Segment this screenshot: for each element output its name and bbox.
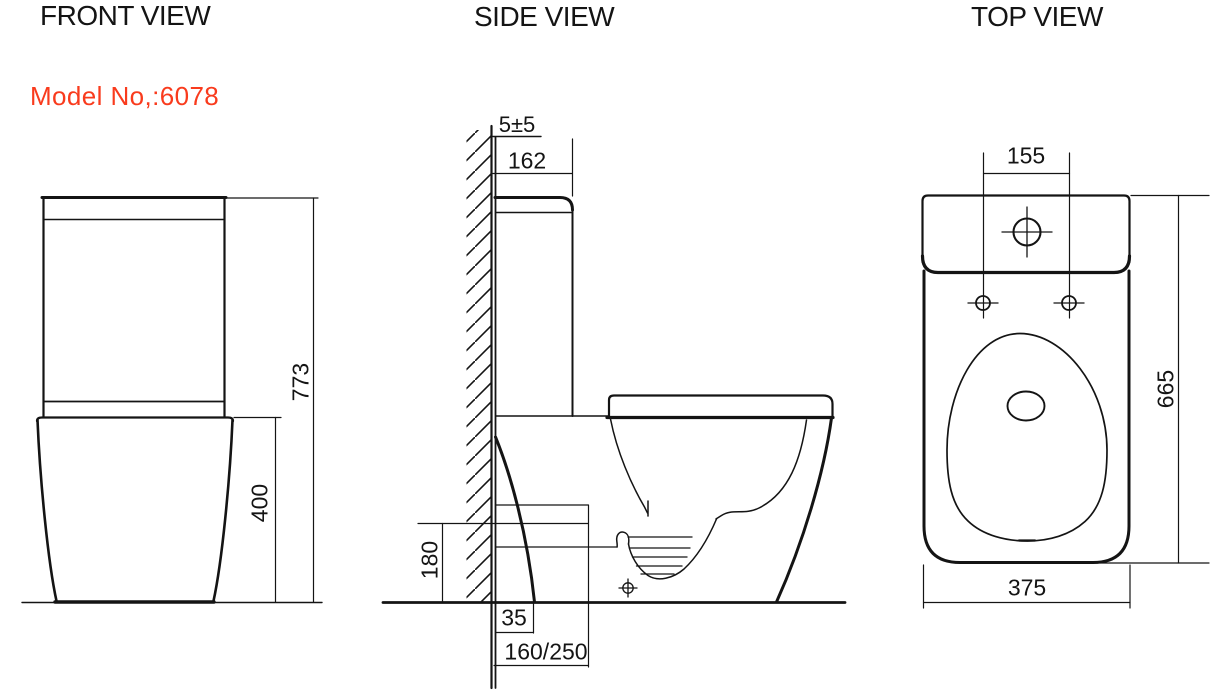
dim-tank-depth: 162 <box>508 150 546 173</box>
side-tank-top <box>495 198 573 211</box>
dim-bowl-height: 400 <box>249 484 272 522</box>
top-seat-inner-outline <box>947 334 1107 542</box>
trap-water-lines <box>628 537 692 574</box>
foot-curve <box>496 437 535 602</box>
trap-hook <box>617 532 629 547</box>
bowl-back-slant <box>777 418 832 602</box>
top-tank-outline <box>923 196 1130 263</box>
front-view-drawing <box>22 198 322 603</box>
dim-foot-clearance: 35 <box>501 607 527 630</box>
top-body-outline <box>924 271 1129 563</box>
dim-wall-gap: 5±5 <box>499 114 536 136</box>
front-base-right <box>214 420 233 601</box>
front-base-left <box>38 420 57 601</box>
seat-lid-outline <box>609 396 833 418</box>
model-number-label: Model No,:6078 <box>30 83 219 109</box>
dim-overall-width: 375 <box>1008 577 1046 600</box>
top-tank-bottom <box>923 256 1130 273</box>
drain-bolt-symbol <box>619 579 637 597</box>
side-view-drawing <box>383 126 845 688</box>
dim-tank-hole-spacing: 155 <box>1007 145 1045 168</box>
technical-drawing-sheet: FRONT VIEW SIDE VIEW TOP VIEW Model No,:… <box>0 0 1211 691</box>
top-mount-hole-symbols <box>968 296 1084 310</box>
top-view-title: TOP VIEW <box>971 3 1103 31</box>
wall-hatching <box>467 130 491 602</box>
bowl-inner-left-curve <box>611 419 648 513</box>
top-inlet-hole-symbol <box>1002 207 1052 257</box>
trap-cup-outline <box>629 519 717 579</box>
front-base-top <box>37 418 233 422</box>
dim-overall-depth: 665 <box>1155 370 1178 408</box>
side-dimension-lines <box>418 137 617 668</box>
dim-trap-setout: 160/250 <box>504 641 587 664</box>
front-view-title: FRONT VIEW <box>40 2 210 30</box>
dim-overall-height: 773 <box>290 363 313 401</box>
side-view-title: SIDE VIEW <box>474 3 614 31</box>
top-drain-oval <box>1008 392 1045 421</box>
bowl-inner-right-curve <box>716 420 807 519</box>
dim-outlet-height: 180 <box>419 541 442 579</box>
